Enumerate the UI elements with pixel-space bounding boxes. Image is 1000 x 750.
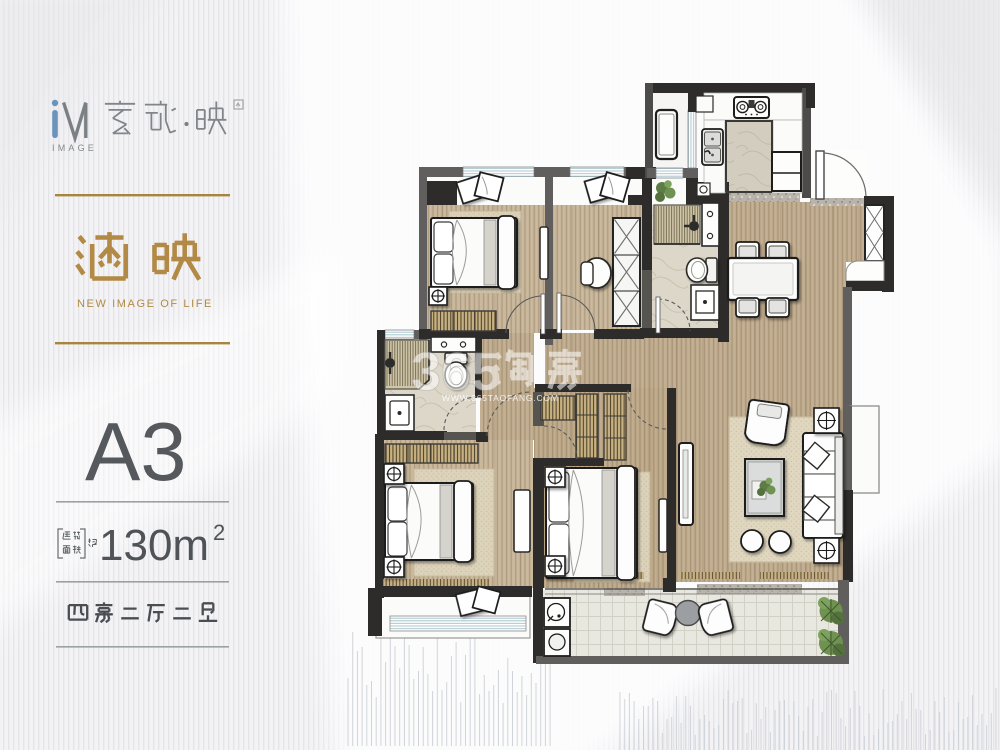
svg-text:130m: 130m (99, 521, 209, 570)
svg-text:WWW.365TAOFANG.COM: WWW.365TAOFANG.COM (442, 393, 559, 403)
svg-text:A3: A3 (85, 405, 187, 498)
svg-text:IMAGE: IMAGE (52, 143, 97, 153)
svg-text:2: 2 (213, 520, 225, 545)
svg-text:NEW IMAGE OF LIFE: NEW IMAGE OF LIFE (77, 298, 213, 310)
